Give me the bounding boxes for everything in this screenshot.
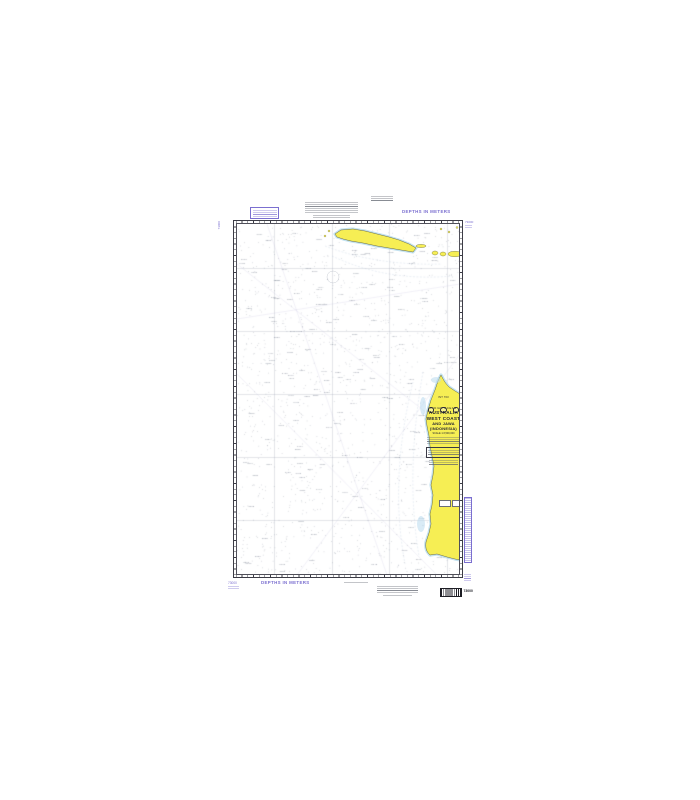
- barcode-number: 73000: [464, 589, 473, 593]
- chart-number-text: 73000: [228, 581, 237, 585]
- product-image: DEPTHS IN METERS 73000 73000: [0, 0, 700, 800]
- authority-notes-block: [305, 202, 358, 214]
- border-ticks-bottom: [236, 575, 460, 577]
- border-ticks-right: [460, 223, 462, 575]
- authority-notes-block-tail: [313, 215, 350, 218]
- barcode: [440, 588, 462, 597]
- chart-number-top-left: 73000: [217, 221, 224, 229]
- caution-note-lines: [428, 450, 459, 456]
- compass-rose: [327, 271, 339, 283]
- production-notes-block: [377, 586, 418, 594]
- tidal-table: [452, 500, 461, 507]
- correction-note-box: [250, 207, 279, 219]
- top-center-fine-print: [371, 196, 393, 201]
- right-margin-fine-print: [464, 574, 471, 582]
- scale-line: SCALE 1:3,500,000: [423, 432, 460, 435]
- projection-fine-print: [427, 437, 460, 445]
- title-line-4: (INDONESIA): [423, 427, 460, 432]
- chart-number-top-right: 73000: [465, 220, 473, 229]
- chart-number-bottom-left: 73000: [228, 581, 239, 590]
- caution-note-box: [426, 447, 461, 458]
- bottom-center-fine-print: [344, 582, 368, 585]
- edition-fine-print: [228, 586, 239, 590]
- tidal-table: [439, 500, 451, 507]
- chart-number-text: 73000: [465, 220, 473, 224]
- depths-in-meters-label-top: DEPTHS IN METERS: [402, 209, 451, 214]
- fine-print-lines: [253, 210, 277, 217]
- meters-fathoms-conversion-scale: [464, 497, 472, 563]
- agency-emblems: [423, 400, 460, 405]
- chart-neatline: INT 703 INDIAN OCEAN AUSTRALIA WEST COAS…: [233, 220, 463, 578]
- production-notes-tail: [383, 595, 412, 598]
- int-number: INT 703: [423, 396, 460, 399]
- map-area: INT 703 INDIAN OCEAN AUSTRALIA WEST COAS…: [236, 223, 460, 575]
- depths-in-meters-label-bottom: DEPTHS IN METERS: [261, 580, 310, 585]
- source-fine-print: [429, 460, 458, 466]
- chart-title-block: INT 703 INDIAN OCEAN AUSTRALIA WEST COAS…: [423, 396, 460, 466]
- edition-fine-print: [465, 225, 472, 229]
